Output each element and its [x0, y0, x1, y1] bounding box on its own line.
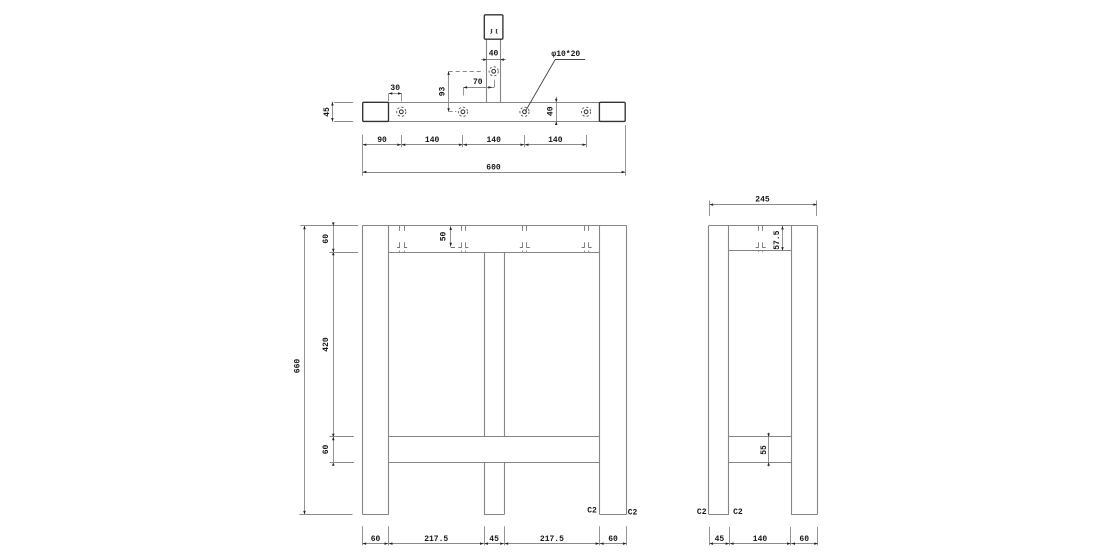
svg-text:140: 140: [548, 136, 563, 145]
svg-text:45: 45: [489, 535, 499, 544]
svg-text:60: 60: [608, 535, 618, 544]
svg-text:40: 40: [489, 50, 499, 59]
svg-text:60: 60: [799, 535, 809, 544]
svg-text:C2: C2: [587, 507, 597, 516]
svg-text:420: 420: [322, 337, 331, 352]
svg-text:57.5: 57.5: [773, 230, 782, 249]
svg-text:70: 70: [473, 78, 483, 87]
svg-text:C2: C2: [697, 508, 707, 517]
svg-text:245: 245: [755, 196, 770, 205]
svg-text:60: 60: [371, 535, 381, 544]
svg-text:45: 45: [323, 107, 332, 117]
svg-text:217.5: 217.5: [540, 535, 564, 544]
svg-text:55: 55: [760, 445, 769, 455]
svg-text:C2: C2: [628, 508, 638, 517]
svg-text:C2: C2: [733, 508, 743, 517]
svg-text:φ10*20: φ10*20: [551, 50, 580, 59]
svg-text:600: 600: [486, 163, 501, 172]
svg-text:140: 140: [486, 136, 501, 145]
svg-text:60: 60: [322, 234, 331, 244]
svg-text:45: 45: [715, 535, 725, 544]
svg-text:40: 40: [547, 106, 556, 116]
svg-text:140: 140: [425, 136, 440, 145]
svg-text:60: 60: [322, 445, 331, 455]
svg-text:90: 90: [377, 136, 387, 145]
svg-text:30: 30: [390, 84, 400, 93]
svg-text:660: 660: [293, 359, 302, 374]
svg-text:140: 140: [753, 535, 768, 544]
svg-text:93: 93: [439, 87, 448, 97]
svg-text:50: 50: [440, 232, 449, 242]
svg-text:217.5: 217.5: [424, 535, 448, 544]
